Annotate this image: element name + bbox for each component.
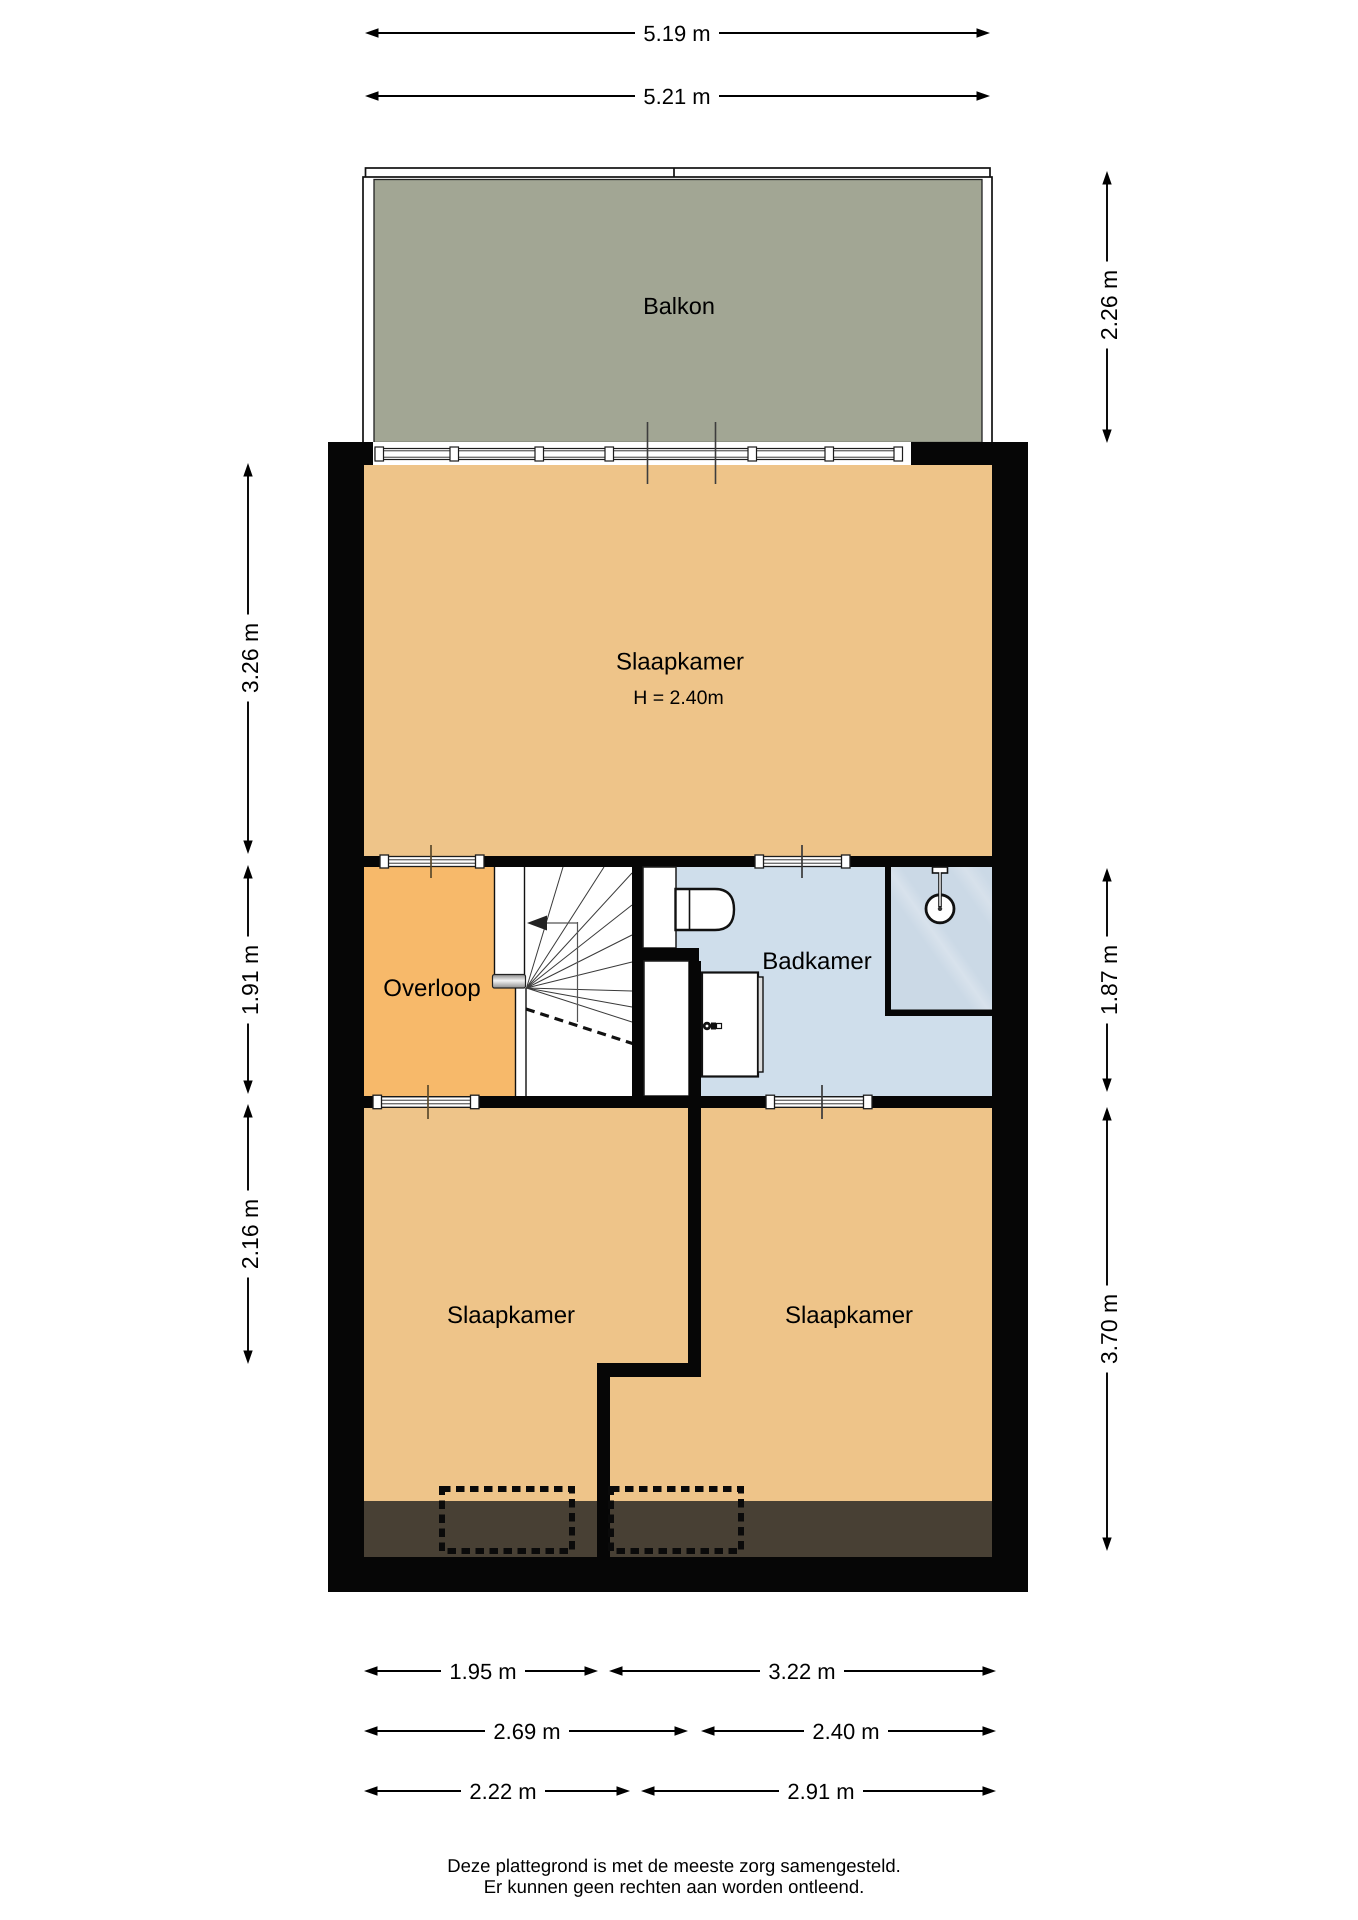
svg-text:Slaapkamer: Slaapkamer — [785, 1302, 913, 1329]
svg-text:3.26 m: 3.26 m — [237, 623, 263, 693]
svg-text:Badkamer: Badkamer — [762, 948, 871, 975]
svg-text:H = 2.40m: H = 2.40m — [633, 687, 724, 709]
svg-text:1.95 m: 1.95 m — [449, 1659, 516, 1684]
svg-text:Deze plattegrond is met de mee: Deze plattegrond is met de meeste zorg s… — [447, 1855, 901, 1876]
svg-text:2.91 m: 2.91 m — [787, 1779, 854, 1804]
svg-text:1.87 m: 1.87 m — [1096, 945, 1122, 1015]
svg-text:Balkon: Balkon — [643, 293, 715, 319]
svg-text:Er kunnen geen rechten aan wor: Er kunnen geen rechten aan worden ontlee… — [484, 1876, 865, 1897]
svg-text:2.40 m: 2.40 m — [812, 1719, 879, 1744]
svg-text:1.91 m: 1.91 m — [237, 945, 263, 1015]
svg-text:Overloop: Overloop — [383, 975, 480, 1002]
svg-text:5.21 m: 5.21 m — [643, 84, 710, 109]
svg-text:2.69 m: 2.69 m — [493, 1719, 560, 1744]
svg-text:2.22 m: 2.22 m — [469, 1779, 536, 1804]
svg-text:2.16 m: 2.16 m — [237, 1199, 263, 1269]
svg-text:3.70 m: 3.70 m — [1096, 1294, 1122, 1364]
svg-text:2.26 m: 2.26 m — [1096, 270, 1122, 340]
svg-text:5.19 m: 5.19 m — [643, 21, 710, 46]
svg-text:Slaapkamer: Slaapkamer — [616, 649, 744, 676]
svg-text:3.22 m: 3.22 m — [768, 1659, 835, 1684]
svg-text:Slaapkamer: Slaapkamer — [447, 1302, 575, 1329]
